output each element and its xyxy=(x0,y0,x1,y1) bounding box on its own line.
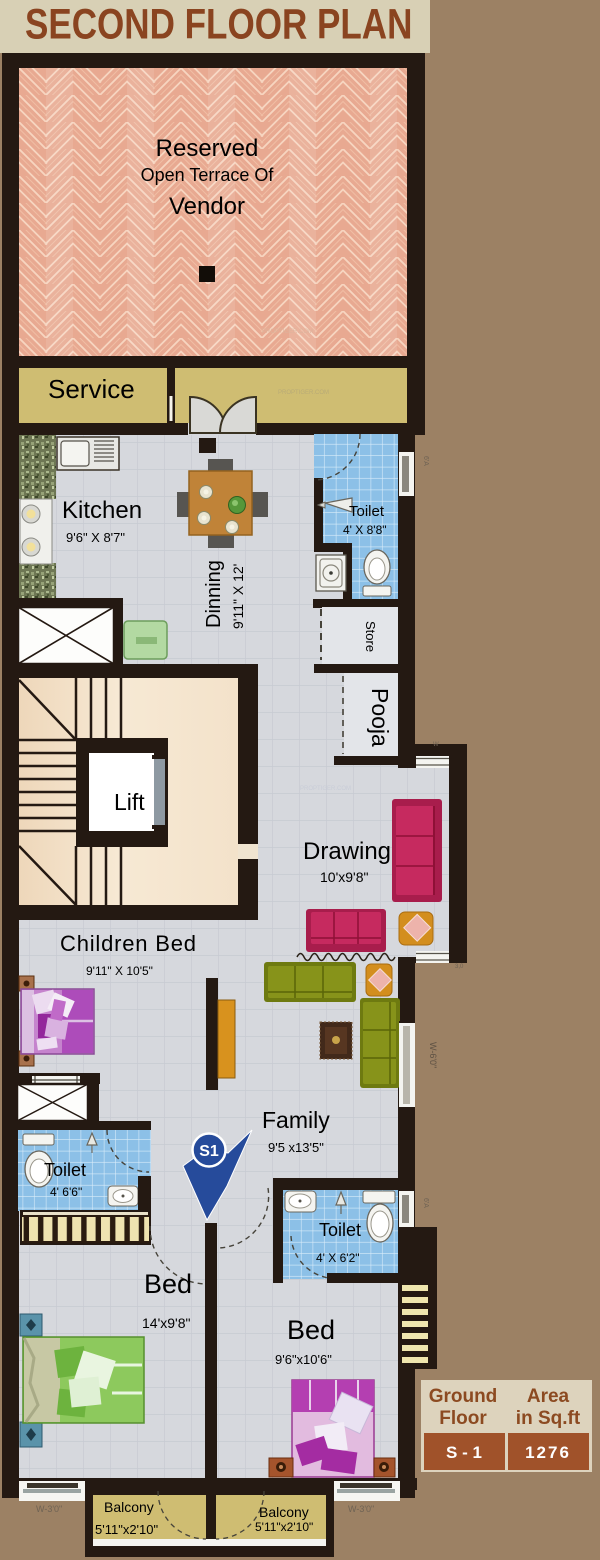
svg-text:9'6" X 8'7": 9'6" X 8'7" xyxy=(66,530,125,545)
svg-text:Bed: Bed xyxy=(287,1315,335,1345)
svg-text:Drawing: Drawing xyxy=(303,838,391,865)
svg-text:Lift: Lift xyxy=(114,789,145,815)
svg-text:Balcony: Balcony xyxy=(104,1499,154,1515)
svg-text:Toilet: Toilet xyxy=(349,503,385,520)
svg-text:S - 1: S - 1 xyxy=(446,1443,482,1462)
svg-text:PROPTIGER.COM: PROPTIGER.COM xyxy=(262,329,313,335)
svg-text:4' X 8'8": 4' X 8'8" xyxy=(343,523,387,537)
svg-text:W-3'0": W-3'0" xyxy=(348,1504,374,1514)
svg-text:W: W xyxy=(433,742,439,748)
svg-text:9'5 x13'5": 9'5 x13'5" xyxy=(268,1140,324,1155)
svg-text:4' 6'6": 4' 6'6" xyxy=(50,1185,82,1199)
svg-text:Bed: Bed xyxy=(144,1269,192,1299)
svg-text:Children Bed: Children Bed xyxy=(60,931,197,956)
svg-text:W-3'0": W-3'0" xyxy=(36,1504,62,1514)
svg-text:5'11"x2'10": 5'11"x2'10" xyxy=(95,1522,158,1537)
svg-text:Reserved: Reserved xyxy=(156,135,259,162)
svg-text:SECOND FLOOR PLAN: SECOND FLOOR PLAN xyxy=(25,0,412,48)
svg-text:Vendor: Vendor xyxy=(169,193,245,220)
svg-text:9'11" X 10'5": 9'11" X 10'5" xyxy=(86,964,153,978)
svg-text:in Sq.ft: in Sq.ft xyxy=(516,1408,581,1429)
svg-text:Ground: Ground xyxy=(429,1386,498,1407)
svg-text:Toilet: Toilet xyxy=(319,1220,361,1240)
svg-text:PROPTIGER.COM: PROPTIGER.COM xyxy=(300,786,351,792)
svg-text:5'11"x2'10": 5'11"x2'10" xyxy=(255,1520,313,1534)
svg-text:10'x9'8": 10'x9'8" xyxy=(320,869,368,885)
svg-text:4' X 6'2": 4' X 6'2" xyxy=(316,1251,360,1265)
svg-text:Balcony: Balcony xyxy=(259,1504,309,1520)
svg-text:W-6'0": W-6'0" xyxy=(428,1042,438,1068)
svg-text:Store: Store xyxy=(363,621,378,652)
svg-text:3,0: 3,0 xyxy=(455,964,464,970)
svg-text:Kitchen: Kitchen xyxy=(62,497,142,524)
svg-text:Open Terrace Of: Open Terrace Of xyxy=(141,165,275,185)
svg-text:Floor: Floor xyxy=(439,1408,487,1429)
svg-text:Pooja: Pooja xyxy=(367,688,393,747)
svg-text:14'x9'8": 14'x9'8" xyxy=(142,1315,190,1331)
svg-text:9'11" X 12': 9'11" X 12' xyxy=(230,564,246,629)
svg-text:6'A: 6'A xyxy=(422,1198,429,1208)
svg-text:9'6"x10'6": 9'6"x10'6" xyxy=(275,1352,332,1367)
svg-text:Area: Area xyxy=(527,1386,570,1407)
svg-text:6'A: 6'A xyxy=(422,456,429,466)
svg-text:Family: Family xyxy=(262,1107,330,1133)
svg-text:1276: 1276 xyxy=(525,1443,571,1462)
svg-text:Dinning: Dinning xyxy=(203,560,225,628)
svg-text:Service: Service xyxy=(48,374,135,404)
svg-text:S1: S1 xyxy=(199,1143,219,1160)
svg-text:Toilet: Toilet xyxy=(44,1160,86,1180)
svg-text:PROPTIGER.COM: PROPTIGER.COM xyxy=(278,390,329,396)
